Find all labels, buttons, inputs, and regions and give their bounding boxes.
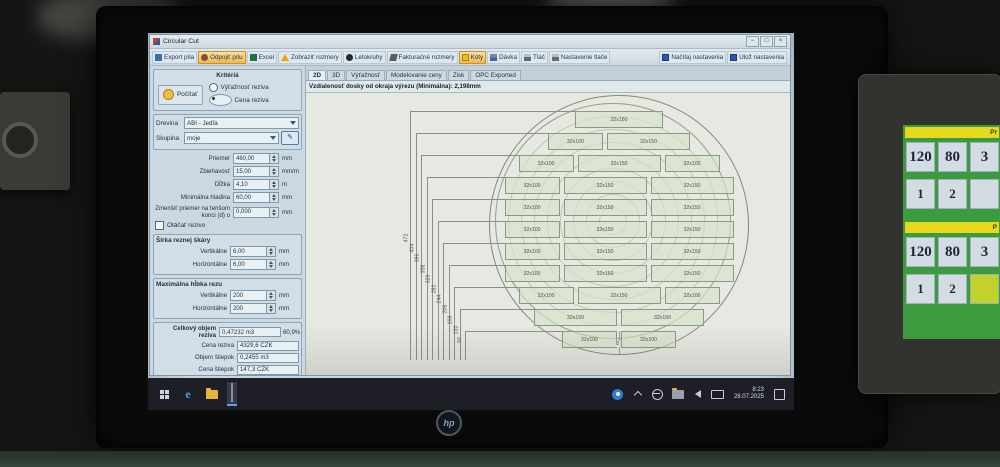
app-icon [153,38,160,45]
toolbar-button-label: Dávka [499,54,517,61]
radio-yield-label: Výťažnosť reziva [221,84,269,91]
board[interactable]: 32x150 [578,287,661,304]
board[interactable]: 32x100 [519,155,574,172]
edit-group-button[interactable]: ✎ [281,131,299,145]
board[interactable]: 32x150 [607,133,690,150]
toolbar-right-group: Načítaj nastaveniaUlož nastavenia [659,51,788,64]
skupina-value: moje [187,135,200,142]
hmi-section-header: Pr [905,127,999,138]
dimension-extension-line [454,287,519,288]
board-label: 32x150 [567,315,584,321]
toolbar-button-fakturacne-rozmery[interactable]: Fakturačné rozmery [387,51,458,64]
board-label: 32x150 [683,227,700,233]
dimension-label: 244 [436,295,442,304]
volume-tray-button[interactable] [691,387,705,401]
excel-icon [250,54,257,61]
field-input[interactable]: 200 [230,303,276,314]
total-value: 0,2455 m3 [237,353,299,364]
board[interactable]: 32x150 [564,243,647,260]
hmi-value-row: 120803 [906,142,999,172]
radio-selected-icon[interactable] [209,94,232,106]
start-button[interactable] [157,387,171,401]
field-row-horizontalne: Horizontálne200mm [156,303,299,314]
hmi-value-row: 120803 [906,237,999,267]
app-window: Circular Cut − □ × Export pílaOdpojiť pí… [149,34,791,376]
toolbar-button-label: Načítaj nastavenia [671,54,723,61]
spinner-down-icon[interactable] [269,265,273,268]
field-unit: mm [279,155,302,162]
hmi-button[interactable]: 2 [938,274,967,304]
disconnect-saw-icon [201,54,208,61]
field-label: Zbiehavosť [153,168,233,175]
board-label: 32x100 [523,183,540,189]
dimension-extension-line [465,331,562,332]
radio-yield[interactable]: Výťažnosť reziva [209,83,269,92]
window-body: Kritériá Počítať Výťažnosť reziva [150,66,790,375]
field-input[interactable]: 460,00 [233,153,279,164]
toolbar-button-davka[interactable]: Dávka [487,51,520,64]
drevina-label: Drevina [156,120,184,127]
board-label: 32x100 [523,205,540,211]
radio-icon[interactable] [209,83,218,92]
dimension-label: 358 [420,264,426,273]
remote-access-icon [612,389,623,400]
log-parameters: Priemer460,00mmZbiehavosť15,00mm/mDĺžka4… [153,153,302,219]
field-value: 460,00 [234,156,269,162]
tab-2d[interactable]: 2D [308,70,326,80]
spinner-down-icon[interactable] [272,213,276,216]
board[interactable]: 32x150 [534,309,617,326]
board-label: 32x150 [683,249,700,255]
criteria-group: Kritériá Počítať Výťažnosť reziva [153,69,302,111]
kerf-group-title: Šírka reznej škáry [156,237,299,244]
dimension-extension-line [443,243,505,244]
tray-expand-button[interactable] [631,387,645,401]
toolbar-button-nastavenie-tlace[interactable]: Nastavenie tlače [549,51,611,64]
field-value: 15,00 [234,169,269,175]
explorer-taskbar-button[interactable] [205,387,219,401]
spinner-up-icon[interactable] [269,292,273,295]
window-titlebar[interactable]: Circular Cut − □ × [150,35,790,49]
spinner-down-icon[interactable] [272,159,276,162]
export-icon [155,54,162,61]
board[interactable]: 32x150 [651,243,734,260]
hmi-value-cell: 80 [938,237,967,267]
toolbar-button-nacitaj-nastavenia[interactable]: Načítaj nastavenia [659,51,726,64]
left-panel: Kritériá Počítať Výťažnosť reziva [150,66,306,375]
hmi-value-cell: 3 [970,142,999,172]
field-row-vertikalne: Vertikálne200mm [156,290,299,301]
field-label: Zmenšiť priemer na tenšom konci (d) o [153,205,233,219]
spinner[interactable] [266,304,275,313]
board-label: 32x100 [537,161,554,167]
spinner-down-icon[interactable] [272,172,276,175]
board[interactable]: 32x150 [564,265,647,282]
dimension-extension-line [410,111,575,112]
drevina-select[interactable]: ABI - Jedľa [184,117,299,129]
toolbar-button-label: Zobraziť rozmery [291,54,339,61]
toolbar-button-label: Excel [259,54,274,61]
spinner-down-icon[interactable] [272,198,276,201]
board[interactable]: 32x100 [665,155,720,172]
dimension-line [465,331,466,360]
tab-opc-exported[interactable]: OPC Exported [470,70,521,80]
hmi-panel: Pr12080312P12080312 [858,74,1000,394]
toolbar-button-label: Export píla [164,54,194,61]
toolbar-button-koty[interactable]: Kóty [459,51,487,64]
radio-price-label: Cena reziva [235,97,269,104]
depth-group: Maximálna hĺbka rezu Vertikálne200mmHori… [153,278,302,319]
hmi-button[interactable]: 1 [906,179,935,209]
saw-icon [389,54,398,61]
info-line: Vzdialenosť dosky od okraja výrezu (Mini… [306,81,790,93]
board[interactable]: 32x100 [505,199,560,216]
windows-logo-icon [160,390,169,399]
total-row-cena-stiepok: Cena štiepok147,3 CZK [156,365,299,376]
hmi-screen: Pr12080312P12080312 [903,125,1000,339]
dimension-label: 396 [414,254,420,263]
spinner-down-icon[interactable] [269,252,273,255]
tab-zisk[interactable]: Zisk [448,70,470,80]
notification-center-button[interactable] [773,387,787,401]
field-input[interactable]: 0,000 [233,207,279,218]
total-row-cena-reziva: Cena reziva4329,6 CZK [156,341,299,352]
board-label: 32x150 [683,183,700,189]
board-label: 32x100 [537,293,554,299]
spinner-up-icon[interactable] [272,168,276,171]
hmi-value-cell: 3 [970,237,999,267]
env-table-edge [0,451,1000,467]
skupina-row: Skupina moje ✎ [156,131,299,145]
toolbar-button-zobrazit-rozmery[interactable]: Zobraziť rozmery [278,51,342,64]
toolbar-button-odpojit-pilu[interactable]: Odpojiť pílu [198,51,245,64]
total-value: 147,3 CZK [237,365,299,376]
total-extra: 60,9% [281,329,299,336]
dimension-label: 472 [403,234,409,243]
maximize-button[interactable]: □ [760,36,773,47]
toolbar-button-excel[interactable]: Excel [247,51,277,64]
hmi-button[interactable]: 1 [906,274,935,304]
field-value: 200 [231,306,266,312]
criteria-title: Kritériá [156,72,299,79]
totals-group: Celkový objem reziva0,47232 m360,9%Cena … [153,322,302,375]
toolbar-button-label: Tlač [533,54,545,61]
hmi-button[interactable] [970,179,999,209]
window-title: Circular Cut [163,38,745,45]
field-value: 6,00 [231,262,266,268]
field-label: Horizontálne [156,261,230,268]
toolbar-button-label: Ulož nastavenia [739,54,784,61]
dimension-label: 206 [442,305,448,314]
board[interactable]: 32x150 [651,199,734,216]
hmi-button[interactable] [970,274,999,304]
toolbar-button-label: Odpojiť pílu [210,54,242,61]
board[interactable]: 32x100 [665,287,720,304]
hmi-value-cell: 80 [938,142,967,172]
field-value: 4,10 [234,182,269,188]
drevina-value: ABI - Jedľa [187,120,218,127]
rotate-checkbox-label: Otáčať rezivo [167,222,205,229]
skupina-label: Skupina [156,135,184,142]
tab-modelovanie-ceny[interactable]: Modelovanie ceny [386,70,447,80]
hp-logo: hp [436,410,462,436]
board-label: 32x150 [683,205,700,211]
field-value: 60,00 [234,195,269,201]
spinner[interactable] [269,193,278,202]
field-unit: mm [276,292,299,299]
laptop-screen: Circular Cut − □ × Export pílaOdpojiť pí… [148,33,794,410]
field-input[interactable]: 4,10 [233,179,279,190]
field-unit: mm/m [279,168,302,175]
dimension-label: 168 [447,315,453,324]
dimension-line [460,309,461,360]
field-unit: mm [279,194,302,201]
field-row-dlzka: Dĺžka4,10m [153,179,302,190]
rings-icon [346,54,353,61]
board-label: 32x150 [610,293,627,299]
total-row-celkovy-objem-reziva: Celkový objem reziva0,47232 m360,9% [156,325,299,339]
tab-vytaznost[interactable]: Výťažnosť [346,70,385,80]
dimension-line [416,133,417,360]
toolbar-button-tlac[interactable]: Tlač [521,51,548,64]
save-icon [730,54,737,61]
toolbar-button-label: Kóty [471,54,484,61]
field-row-zbiehavost: Zbiehavosť15,00mm/m [153,166,302,177]
toolbar: Export pílaOdpojiť píluExcelZobraziť roz… [150,49,790,66]
dimension-extension-line [427,177,505,178]
field-input[interactable]: 200 [230,290,276,301]
board-label: 32x100 [523,271,540,277]
board[interactable]: 32x150 [651,265,734,282]
board-label: 32x100 [567,139,584,145]
spinner-down-icon[interactable] [269,296,273,299]
board[interactable]: 32x150 [651,221,734,238]
dimension-label: 130 [453,325,459,334]
hmi-button-row: 12 [906,274,999,304]
batch-icon [490,54,497,61]
notification-icon [774,389,785,400]
load-icon [662,54,669,61]
rotate-checkbox-row[interactable]: Otáčať rezivo [155,221,302,230]
board[interactable]: 32x150 [564,221,647,238]
board[interactable]: 32x100 [505,221,560,238]
system-tray: 8:23 28.07.2025 [608,387,790,402]
taskbar-clock[interactable]: 8:23 28.07.2025 [734,387,764,402]
spinner-up-icon[interactable] [272,155,276,158]
board-label: 32x150 [596,271,613,277]
spinner[interactable] [266,247,275,256]
field-row-priemer: Priemer460,00mm [153,153,302,164]
toolbar-button-uloz-nastavenia[interactable]: Ulož nastavenia [727,51,787,64]
total-label: Objem štiepok [156,354,237,361]
board-label: 32x150 [683,271,700,277]
radio-price[interactable]: Cena reziva [209,94,269,106]
field-unit: m [279,181,302,188]
toolbar-button-export-pila[interactable]: Export píla [152,51,197,64]
total-label: Cena štiepok [156,366,237,373]
field-label: Vertikálne [156,248,230,255]
board[interactable]: 32x150 [651,177,734,194]
total-label: Celkový objem reziva [156,325,219,339]
board-label: 32x100 [683,161,700,167]
dimension-label: 282 [431,285,437,294]
globe-icon [652,389,663,400]
field-input[interactable]: 15,00 [233,166,279,177]
calculate-button[interactable]: Počítať [158,85,203,105]
field-label: Vertikálne [156,292,230,299]
field-unit: mm [276,305,299,312]
field-label: Minimálna hladina [153,194,233,201]
spinner-down-icon[interactable] [269,309,273,312]
board[interactable]: 32x160 [575,111,663,128]
board[interactable]: 32x100 [505,177,560,194]
spinner-up-icon[interactable] [269,305,273,308]
field-input[interactable]: 6,00 [230,246,276,257]
depth-fields: Vertikálne200mmHorizontálne200mm [156,290,299,314]
spinner-up-icon[interactable] [269,261,273,264]
spinner-up-icon[interactable] [272,181,276,184]
board-label: 32x100 [523,227,540,233]
remote-access-tray-button[interactable] [611,387,625,401]
field-value: 6,00 [231,249,266,255]
calculate-button-label: Počítať [177,91,198,98]
board-label: 32x100 [581,337,598,343]
clock-date: 28.07.2025 [734,394,764,402]
dimension-label: 434 [409,244,415,253]
close-button[interactable]: × [774,36,787,47]
field-unit: mm [276,248,299,255]
dimension-line [454,287,455,360]
hmi-button[interactable]: 2 [938,179,967,209]
print-settings-icon [552,54,559,61]
clock-time: 8:23 [734,387,764,395]
skupina-select[interactable]: moje [184,132,279,144]
kerf-group: Šírka reznej škáry Vertikálne6,00mmHoriz… [153,234,302,275]
field-row-vertikalne: Vertikálne6,00mm [156,246,299,257]
dimension-extension-line [421,155,519,156]
board[interactable]: 32x150 [621,309,704,326]
board-label: 32x100 [683,293,700,299]
edge-taskbar-button[interactable]: e [181,387,195,401]
spinner-up-icon[interactable] [272,209,276,212]
board[interactable]: 32x100 [505,265,560,282]
field-input[interactable]: 60,00 [233,192,279,203]
circular-cut-app-icon [231,383,233,402]
dimension-extension-line [432,199,505,200]
field-row-minimalna-hladina: Minimálna hladina60,00mm [153,192,302,203]
cut-diagram-canvas[interactable]: 32x16032x10032x15032x10032x15032x10032x1… [306,93,790,375]
spinner[interactable] [266,260,275,269]
criteria-options: Výťažnosť reziva Cena reziva [209,81,269,108]
board-label: 32x100 [523,249,540,255]
spinner[interactable] [269,167,278,176]
keyboard-tray-button[interactable] [711,387,725,401]
board[interactable]: 32x150 [564,177,647,194]
folder-gray-icon [672,390,684,399]
field-label: Horizontálne [156,305,230,312]
active-app-taskbar-button[interactable] [227,382,237,406]
total-value: 4329,6 CZK [237,341,299,352]
network-tray-button[interactable] [651,387,665,401]
dimension-extension-line [416,133,549,134]
field-row-horizontalne: Horizontálne6,00mm [156,259,299,270]
keyboard-icon [711,390,724,399]
dimension-label: 320 [425,274,431,283]
hmi-button-row: 12 [906,179,999,209]
board[interactable]: 32x100 [519,287,574,304]
hmi-value-cell: 120 [906,142,935,172]
total-row-objem-stiepok: Objem štiepok0,2455 m3 [156,353,299,364]
print-icon [524,54,531,61]
total-value: 0,47232 m3 [219,327,281,338]
dimension-line [432,199,433,360]
dimension-extension-line [449,265,505,266]
hmi-value-cell: 120 [906,237,935,267]
warning-icon [281,54,289,61]
board-label: 32x150 [596,205,613,211]
wood-group: Drevina ABI - Jedľa Skupina moje [153,114,302,150]
field-input[interactable]: 6,00 [230,259,276,270]
toolbar-button-letokruhy[interactable]: Letokruhy [343,51,386,64]
kerf-fields: Vertikálne6,00mmHorizontálne6,00mm [156,246,299,270]
folder-icon [206,390,218,399]
spinner[interactable] [266,291,275,300]
spinner[interactable] [269,208,278,217]
board[interactable]: 32x150 [564,199,647,216]
dimension-extension-line [460,309,535,310]
spinner-down-icon[interactable] [272,185,276,188]
board-label: 32x150 [596,249,613,255]
board-label: 32x150 [654,315,671,321]
spinner[interactable] [269,154,278,163]
toolbar-left-group: Export pílaOdpojiť píluExcelZobraziť roz… [152,51,611,64]
tab-3d[interactable]: 3D [327,70,345,80]
toolbar-button-label: Nastavenie tlače [561,54,608,61]
spinner-up-icon[interactable] [272,194,276,197]
axis-bottom-label: 8 [615,341,620,347]
tray-folder-button[interactable] [671,387,685,401]
spinner[interactable] [269,180,278,189]
checkbox-icon[interactable] [155,221,164,230]
main-area: 2D3DVýťažnosťModelovanie cenyZiskOPC Exp… [306,66,790,375]
board-label: 32x150 [610,161,627,167]
field-value: 200 [231,293,266,299]
drevina-row: Drevina ABI - Jedľa [156,117,299,129]
toolbar-button-label: Fakturačné rozmery [399,54,455,61]
dimension-line [443,243,444,360]
board[interactable]: 32x100 [621,331,676,348]
dimension-line [421,155,422,360]
board[interactable]: 32x100 [562,331,617,348]
field-label: Dĺžka [153,181,233,188]
dimension-line [449,265,450,360]
board-label: 32x150 [640,139,657,145]
dimension-line [427,177,428,360]
board[interactable]: 32x100 [548,133,603,150]
board[interactable]: 32x150 [578,155,661,172]
board-label: 32x160 [610,117,627,123]
field-unit: mm [276,261,299,268]
field-label: Priemer [153,155,233,162]
depth-group-title: Maximálna hĺbka rezu [156,281,299,288]
minimize-button[interactable]: − [746,36,759,47]
board-label: 32x100 [640,337,657,343]
spinner-up-icon[interactable] [269,248,273,251]
board[interactable]: 32x100 [505,243,560,260]
dimension-label: 92 [457,337,463,343]
hmi-section-header: P [905,222,999,233]
calc-sun-icon [163,89,174,100]
